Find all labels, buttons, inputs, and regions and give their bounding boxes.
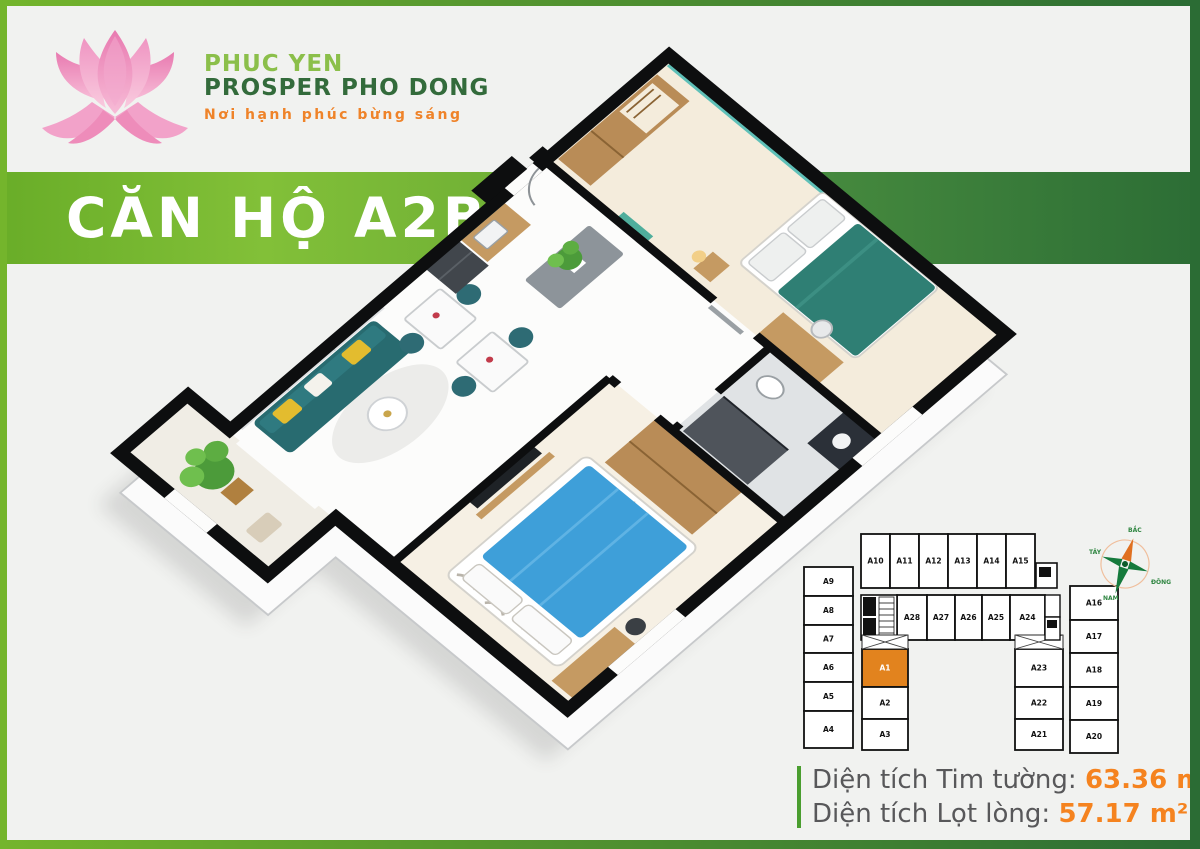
keyplan-label-A2: A2	[879, 699, 890, 708]
keyplan-label-A25: A25	[988, 613, 1004, 622]
area-net: Diện tích Lọt lòng: 57.17 m²	[812, 797, 1200, 831]
living-rug	[311, 347, 469, 481]
frame-right	[1190, 0, 1200, 849]
keyplan-label-A12: A12	[925, 557, 941, 566]
towel-rack	[708, 305, 744, 335]
keyplan-label-A13: A13	[954, 557, 970, 566]
brand-line2: PROSPER PHO DONG	[204, 77, 489, 101]
keyplan-label-A8: A8	[823, 606, 834, 615]
keyplan-label-A28: A28	[904, 613, 920, 622]
frame-top	[0, 0, 1200, 6]
keyplan-label-A9: A9	[823, 577, 834, 586]
balcony	[166, 432, 303, 546]
dining-set	[385, 272, 549, 409]
bedroom2-floor	[392, 378, 785, 709]
accent-bar	[797, 766, 801, 828]
apartment-title: CĂN HỘ A2B	[66, 186, 489, 250]
compass-west-label: TÂY	[1089, 549, 1102, 556]
keyplan-label-A18: A18	[1086, 666, 1102, 675]
brand-line1: PHUC YEN	[204, 53, 489, 77]
desk-chair-1	[807, 317, 836, 341]
area-gross-value: 63.36 m²	[1085, 765, 1200, 795]
keyplan-label-A10: A10	[867, 557, 883, 566]
bathroom	[683, 354, 876, 516]
lotus-icon	[40, 22, 190, 154]
keyplan-label-A17: A17	[1086, 632, 1102, 641]
tv-shelf	[476, 452, 555, 519]
keyplan-label-A23: A23	[1031, 664, 1047, 673]
keyplan-label-A20: A20	[1086, 732, 1102, 741]
keyplan-label-A22: A22	[1031, 699, 1047, 708]
frame-bottom	[0, 840, 1200, 849]
keyplan-label-A26: A26	[960, 613, 976, 622]
keyplan-label-A5: A5	[823, 692, 834, 701]
keyplan-label-A21: A21	[1031, 730, 1047, 739]
tv	[470, 447, 542, 509]
keyplan-label-A4: A4	[823, 725, 834, 734]
bathroom-vanity	[807, 412, 875, 470]
brand-tagline: Nơi hạnh phúc bừng sáng	[204, 108, 489, 123]
bedroom-2	[404, 383, 778, 698]
brand-logo: PHUC YEN PROSPER PHO DONG Nơi hạnh phúc …	[40, 22, 489, 154]
area-gross: Diện tích Tim tường: 63.36 m²	[812, 763, 1200, 797]
bathroom-floor	[673, 347, 883, 523]
keyplan-label-A24: A24	[1019, 613, 1035, 622]
sofa	[252, 319, 412, 454]
compass-east-label: ĐÔNG	[1151, 579, 1171, 586]
bed-second	[445, 455, 699, 669]
balcony-floor	[123, 398, 333, 573]
area-gross-label: Diện tích Tim tường:	[812, 765, 1077, 795]
keyplan-label-A11: A11	[896, 557, 912, 566]
hallway	[708, 305, 744, 335]
balcony-plant	[166, 432, 267, 517]
keyplan-label-A7: A7	[823, 635, 834, 644]
keyplan-label-A16: A16	[1086, 599, 1102, 608]
frame-left	[0, 0, 7, 849]
living-room	[236, 303, 478, 507]
desk-2	[552, 627, 636, 698]
shower	[683, 397, 788, 485]
balcony-stool	[245, 512, 283, 544]
keyplan-label-A1: A1	[879, 664, 890, 673]
toilet	[751, 372, 789, 404]
area-info: Diện tích Tim tường: 63.36 m² Diện tích …	[797, 763, 1200, 831]
keyplan-label-A27: A27	[933, 613, 949, 622]
coffee-table	[360, 391, 415, 437]
keyplan-label-A19: A19	[1086, 699, 1102, 708]
desk-chair-2	[621, 614, 650, 638]
keyplan-label-A14: A14	[983, 557, 999, 566]
keyplan-label-A15: A15	[1012, 557, 1028, 566]
wardrobe-1	[558, 74, 689, 185]
elevator-core	[861, 595, 897, 640]
keyplan-label-A3: A3	[879, 730, 890, 739]
desk-1	[759, 312, 844, 383]
wardrobe-2	[605, 420, 742, 534]
flyer-canvas: CĂN HỘ A2B	[0, 0, 1200, 849]
compass-north-label: BẮC	[1128, 526, 1142, 534]
keyplan-label-A6: A6	[823, 663, 834, 672]
area-net-label: Diện tích Lọt lòng:	[812, 799, 1050, 829]
area-net-value: 57.17 m²	[1058, 799, 1188, 829]
apartment-banner: CĂN HỘ A2B	[0, 172, 1200, 264]
key-plan: A9A8A7A6A5A4A10A11A12A13A14A15A28A27A26A…	[795, 518, 1190, 768]
compass-south-label: NAM	[1103, 595, 1119, 602]
